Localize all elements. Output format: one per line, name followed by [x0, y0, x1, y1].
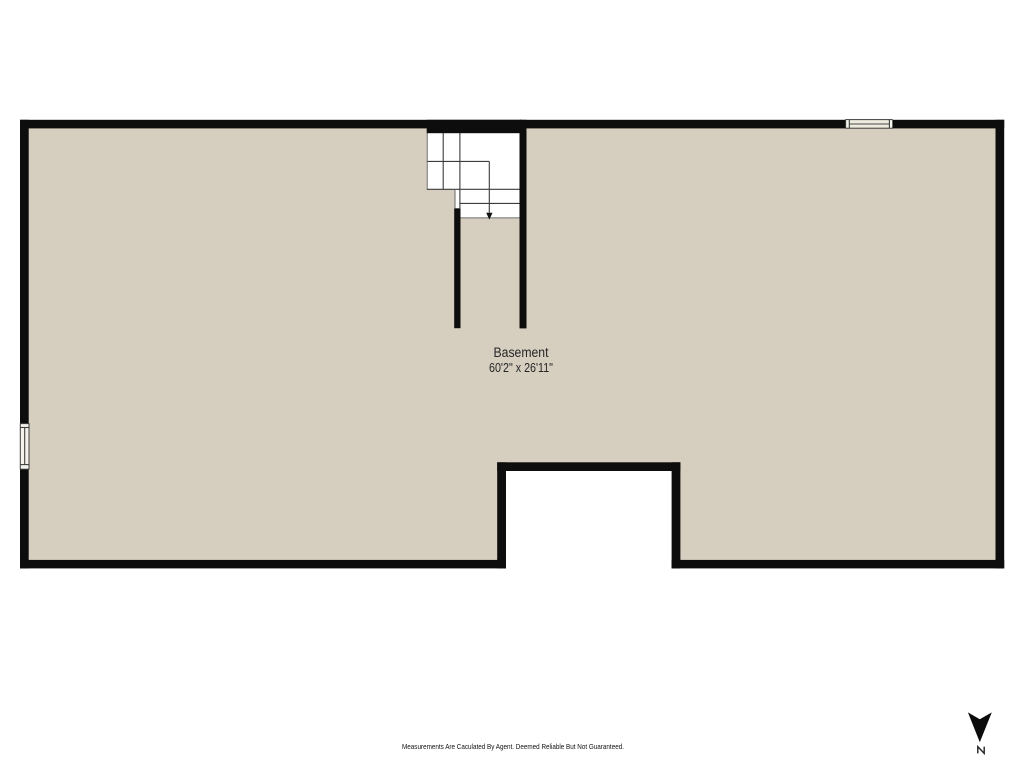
svg-text:Measurements Are Caculated By: Measurements Are Caculated By Agent. Dee…: [402, 742, 624, 751]
svg-text:60'2" x 26'11": 60'2" x 26'11": [489, 361, 553, 375]
svg-text:Basement: Basement: [494, 345, 549, 360]
